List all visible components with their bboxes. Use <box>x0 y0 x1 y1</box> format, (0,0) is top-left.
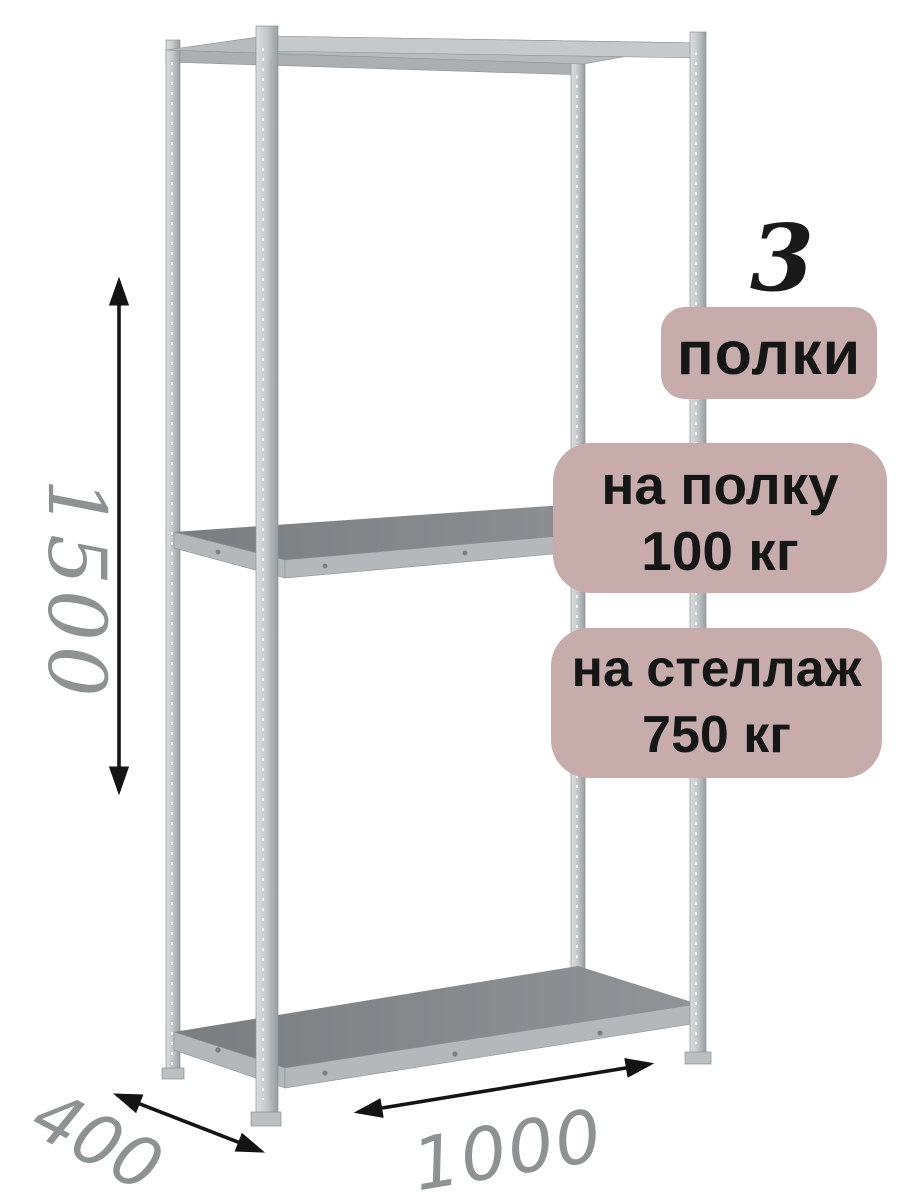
shelf-count-number: 3 <box>706 212 858 304</box>
rack-load-line1: на стеллаж <box>572 637 862 703</box>
rack-load-line2: 750 кг <box>642 703 791 769</box>
shelving-rack-illustration <box>0 0 900 1200</box>
height-dimension-label: 1500 <box>36 478 116 702</box>
shelf-count-badge: полки <box>661 307 877 399</box>
product-image: 1500 400 1000 3 полки на полку 100 кг на… <box>0 0 900 1200</box>
rack-load-badge: на стеллаж 750 кг <box>551 628 882 778</box>
shelf-count-label: полки <box>677 318 861 388</box>
shelf-load-badge: на полку 100 кг <box>553 443 887 593</box>
rack-post-front-left <box>251 26 281 1126</box>
width-dimension-arrow <box>358 1064 650 1112</box>
shelf-load-line1: на полку <box>601 452 839 518</box>
rack-post-back-left <box>162 40 184 1079</box>
shelf-load-line2: 100 кг <box>641 518 798 584</box>
